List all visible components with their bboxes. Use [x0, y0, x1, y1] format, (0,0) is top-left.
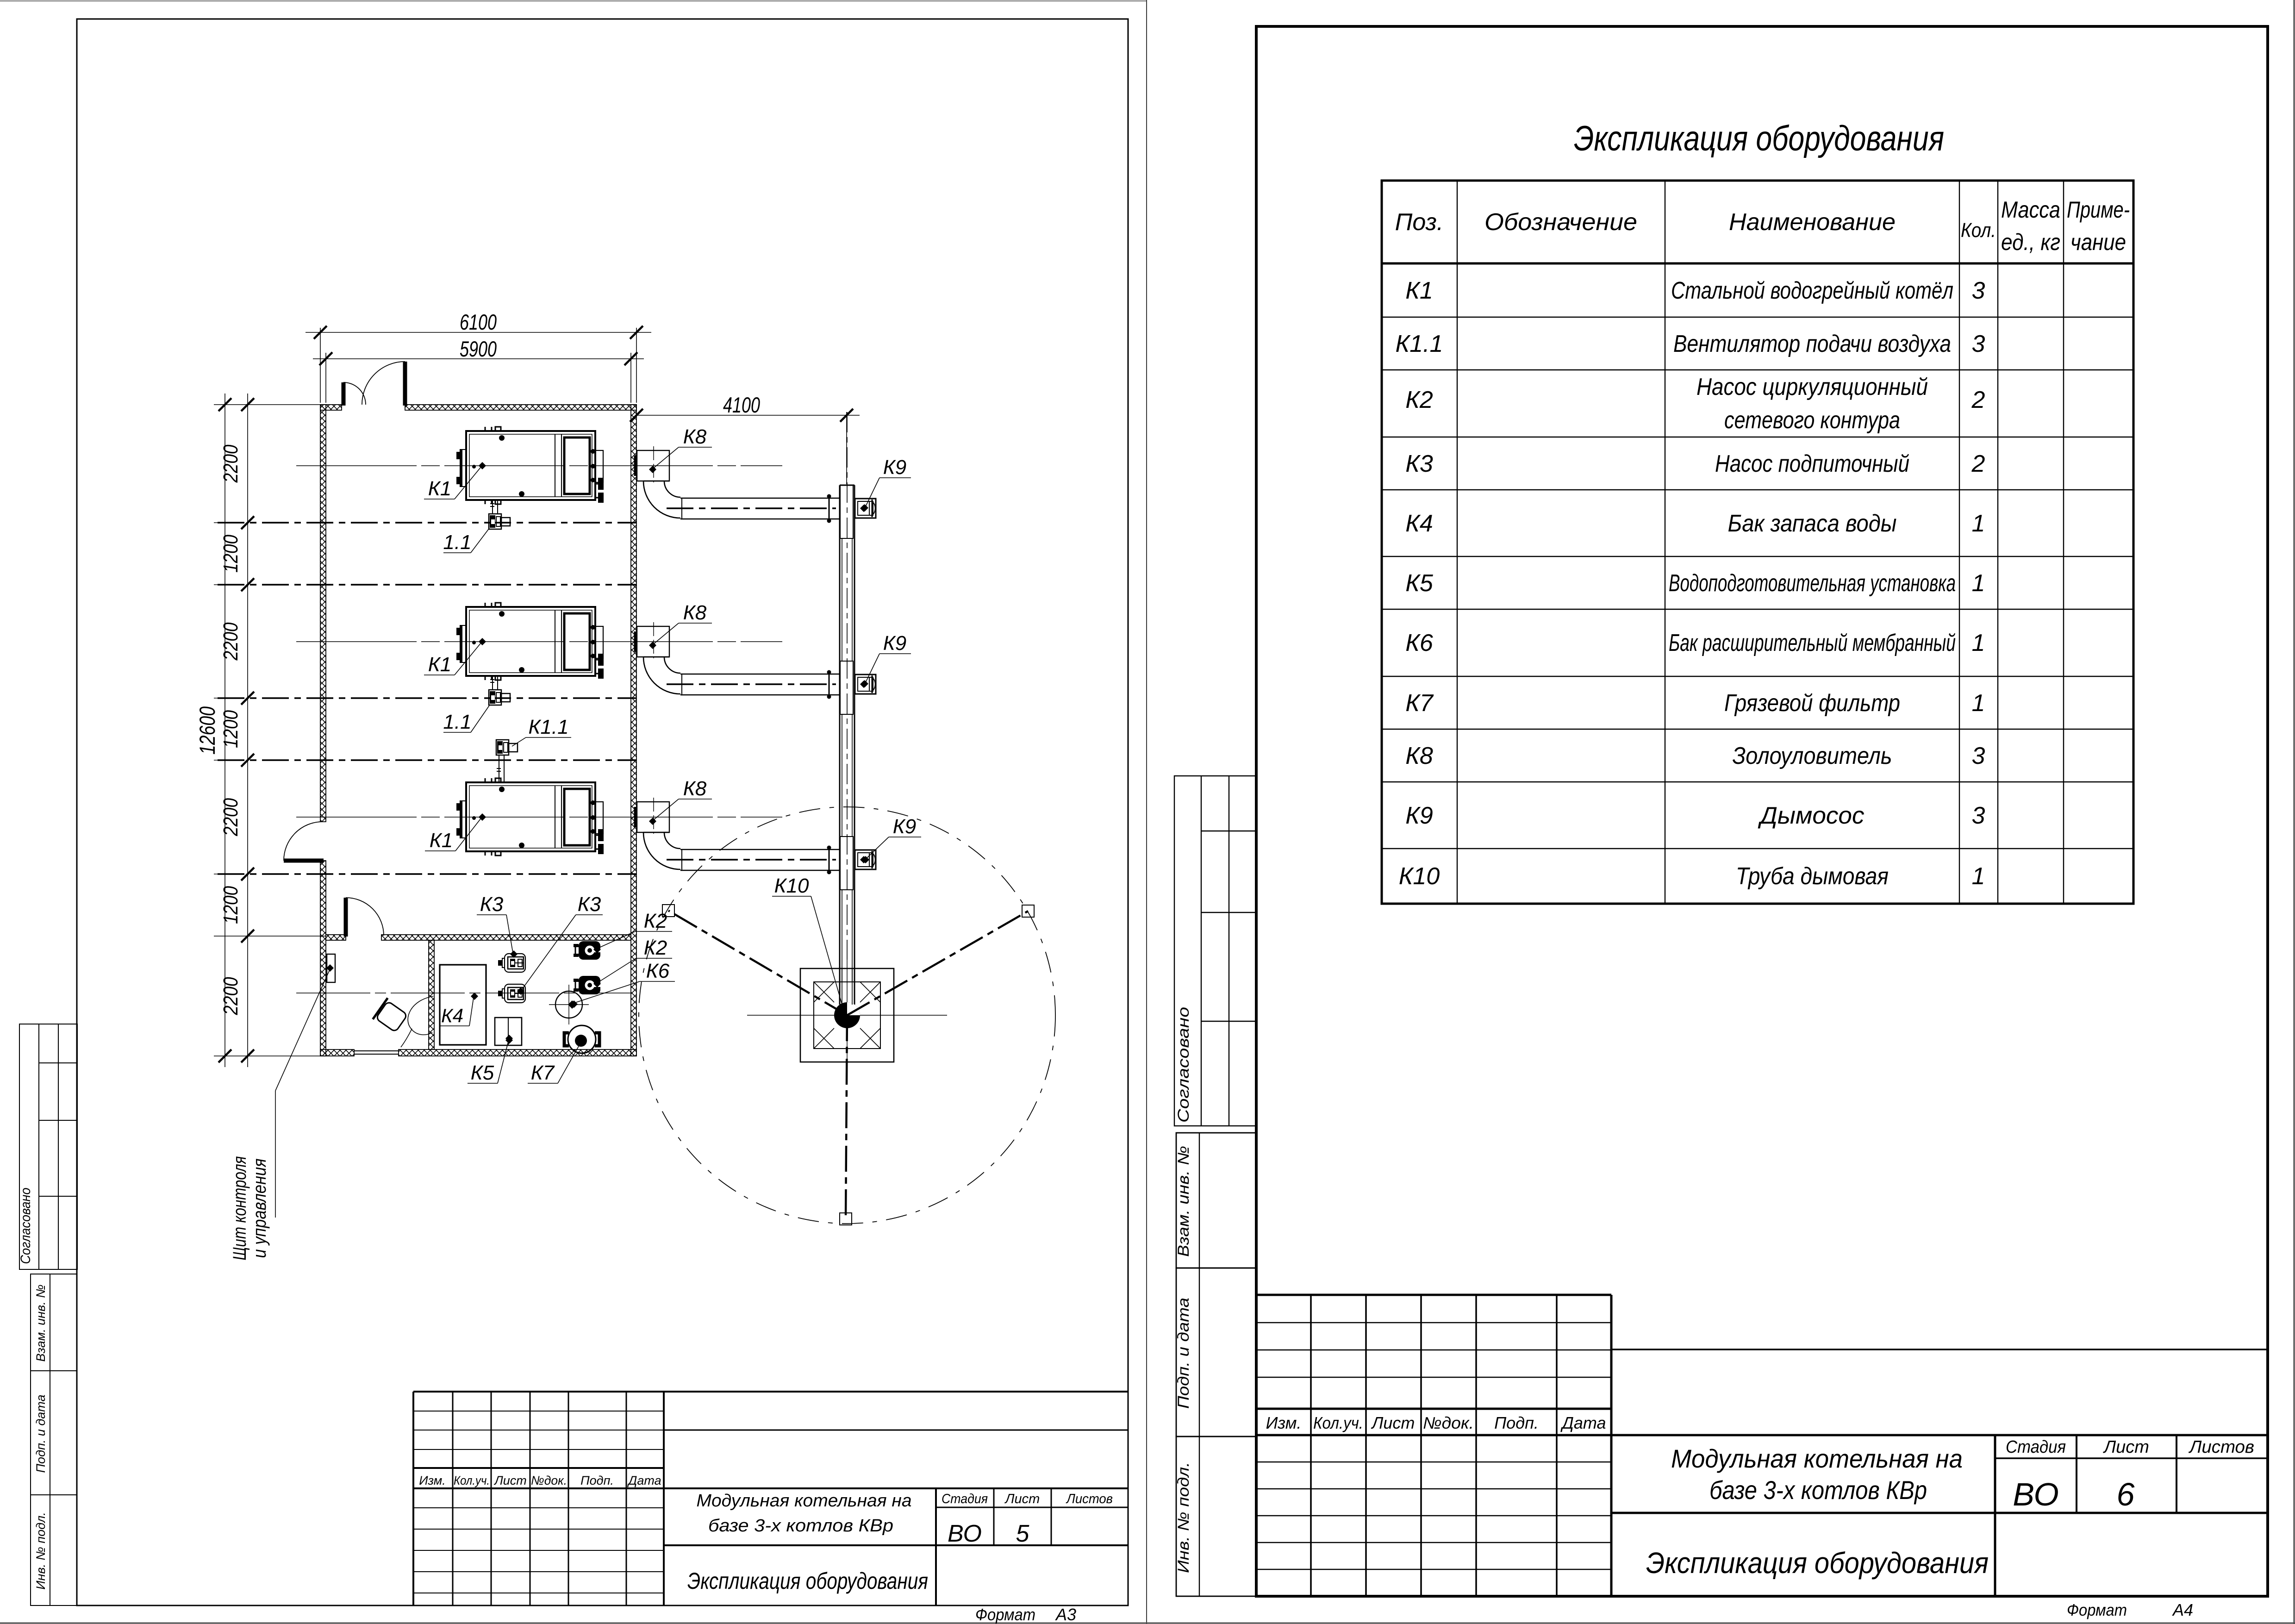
- svg-text:1200: 1200: [219, 535, 242, 573]
- svg-text:Насос подпиточный: Насос подпиточный: [1715, 450, 1909, 477]
- svg-text:К3: К3: [578, 893, 601, 916]
- svg-text:Лист: Лист: [493, 1474, 527, 1487]
- svg-text:4100: 4100: [723, 393, 760, 417]
- svg-text:К8: К8: [683, 601, 707, 624]
- svg-text:Кол.уч.: Кол.уч.: [1313, 1413, 1363, 1432]
- svg-text:1: 1: [1972, 570, 1985, 597]
- svg-text:Подп. и дата: Подп. и дата: [34, 1394, 48, 1473]
- svg-text:Листов: Листов: [2188, 1437, 2254, 1457]
- svg-text:3: 3: [1972, 331, 1985, 357]
- svg-text:Подп. и дата: Подп. и дата: [1175, 1298, 1192, 1409]
- svg-text:Взам. инв. №: Взам. инв. №: [34, 1285, 48, 1362]
- svg-text:Дата: Дата: [627, 1474, 661, 1487]
- svg-text:3: 3: [1972, 743, 1985, 769]
- svg-text:1.1: 1.1: [443, 711, 471, 733]
- svg-text:1.1: 1.1: [443, 531, 471, 554]
- svg-text:Формат: Формат: [975, 1605, 1035, 1624]
- svg-text:ВО: ВО: [948, 1520, 982, 1547]
- svg-text:Согласовано: Согласовано: [1175, 1007, 1192, 1123]
- svg-text:К1.1: К1.1: [1396, 331, 1443, 357]
- svg-text:К5: К5: [471, 1062, 494, 1084]
- svg-text:К7: К7: [531, 1062, 555, 1084]
- svg-text:К8: К8: [683, 777, 707, 800]
- svg-text:Взам. инв. №: Взам. инв. №: [1175, 1146, 1192, 1257]
- svg-text:№док.: №док.: [1423, 1413, 1474, 1432]
- svg-text:Экспликация оборудования: Экспликация оборудования: [1646, 1546, 1989, 1580]
- svg-text:3: 3: [1972, 802, 1985, 829]
- svg-text:12600: 12600: [195, 706, 219, 755]
- svg-text:К6: К6: [1405, 630, 1433, 656]
- svg-text:Дымосос: Дымосос: [1758, 802, 1864, 829]
- svg-text:К9: К9: [893, 815, 916, 838]
- svg-text:Изм.: Изм.: [1266, 1413, 1302, 1432]
- svg-text:5: 5: [1016, 1520, 1030, 1547]
- svg-text:Кол.: Кол.: [1961, 219, 1996, 242]
- svg-text:Бак расширительный мембранный: Бак расширительный мембранный: [1669, 630, 1956, 656]
- svg-text:Экспликация оборудования: Экспликация оборудования: [687, 1568, 928, 1594]
- svg-text:Экспликация оборудования: Экспликация оборудования: [1574, 119, 1944, 158]
- svg-text:Масса: Масса: [2001, 197, 2060, 223]
- svg-text:Лист: Лист: [2102, 1437, 2149, 1457]
- svg-text:Кол.уч.: Кол.уч.: [454, 1474, 490, 1487]
- svg-text:А4: А4: [2172, 1600, 2193, 1619]
- svg-text:К6: К6: [646, 960, 670, 982]
- svg-text:2200: 2200: [219, 622, 242, 661]
- svg-text:5900: 5900: [460, 337, 497, 361]
- svg-text:К1: К1: [430, 829, 453, 852]
- svg-text:Водоподготовительная установка: Водоподготовительная установка: [1669, 570, 1956, 597]
- svg-text:К7: К7: [1405, 690, 1434, 717]
- svg-text:3: 3: [1972, 277, 1985, 304]
- svg-text:К8: К8: [683, 425, 707, 448]
- svg-text:Инв. № подл.: Инв. № подл.: [1175, 1462, 1192, 1573]
- svg-text:сетевого контура: сетевого контура: [1724, 407, 1900, 434]
- svg-text:Стальной водогрейный котёл: Стальной водогрейный котёл: [1671, 277, 1953, 304]
- svg-text:К3: К3: [1405, 450, 1433, 477]
- svg-text:6100: 6100: [460, 310, 497, 334]
- svg-text:К10: К10: [1399, 863, 1440, 890]
- svg-text:Бак запаса воды: Бак запаса воды: [1728, 510, 1897, 537]
- svg-text:К1.1: К1.1: [528, 716, 568, 738]
- svg-text:1200: 1200: [219, 886, 242, 924]
- svg-text:Наименование: Наименование: [1729, 209, 1896, 236]
- svg-text:К8: К8: [1405, 743, 1433, 769]
- svg-text:Согласовано: Согласовано: [18, 1188, 33, 1264]
- svg-text:К1: К1: [1405, 277, 1433, 304]
- svg-text:Поз.: Поз.: [1395, 209, 1444, 236]
- svg-text:базе 3-х котлов КВр: базе 3-х котлов КВр: [708, 1516, 893, 1536]
- svg-text:Дата: Дата: [1560, 1413, 1606, 1432]
- svg-text:К2: К2: [644, 910, 667, 932]
- svg-text:2: 2: [1971, 450, 1985, 477]
- svg-text:№док.: №док.: [531, 1474, 567, 1487]
- svg-text:2200: 2200: [219, 444, 242, 483]
- svg-text:К3: К3: [480, 893, 504, 916]
- svg-text:Модульная котельная на: Модульная котельная на: [697, 1491, 912, 1511]
- svg-text:чание: чание: [2070, 229, 2126, 255]
- svg-text:К1: К1: [428, 653, 451, 676]
- svg-text:Стадия: Стадия: [2006, 1437, 2066, 1457]
- svg-text:Лист: Лист: [1371, 1413, 1415, 1432]
- svg-text:ед., кг: ед., кг: [2001, 229, 2060, 255]
- svg-text:Изм.: Изм.: [419, 1474, 446, 1487]
- svg-text:К5: К5: [1405, 570, 1434, 597]
- svg-text:Листов: Листов: [1066, 1492, 1113, 1506]
- svg-text:К1: К1: [428, 477, 451, 500]
- svg-text:К10: К10: [774, 874, 809, 897]
- svg-text:Приме-: Приме-: [2067, 197, 2130, 223]
- svg-text:2: 2: [1971, 387, 1985, 413]
- svg-text:Инв. № подл.: Инв. № подл.: [34, 1512, 48, 1590]
- svg-text:Формат: Формат: [2067, 1600, 2127, 1619]
- svg-text:Грязевой фильтр: Грязевой фильтр: [1724, 690, 1900, 717]
- svg-text:К9: К9: [883, 456, 906, 479]
- svg-text:Модульная котельная на: Модульная котельная на: [1671, 1444, 1963, 1473]
- svg-text:1: 1: [1972, 690, 1985, 717]
- svg-text:К9: К9: [1405, 802, 1433, 829]
- svg-text:Щит контроля: Щит контроля: [230, 1156, 250, 1261]
- svg-text:1: 1: [1972, 510, 1985, 537]
- svg-text:Стадия: Стадия: [942, 1492, 988, 1506]
- svg-text:Труба дымовая: Труба дымовая: [1736, 863, 1889, 890]
- svg-text:ВО: ВО: [2013, 1476, 2059, 1512]
- svg-text:Лист: Лист: [1004, 1492, 1040, 1506]
- svg-text:Обозначение: Обозначение: [1484, 209, 1637, 236]
- svg-text:Вентилятор подачи воздуха: Вентилятор подачи воздуха: [1673, 331, 1951, 357]
- svg-text:Золоуловитель: Золоуловитель: [1733, 743, 1892, 769]
- svg-text:К4: К4: [441, 1005, 463, 1026]
- svg-text:К2: К2: [644, 937, 667, 959]
- svg-text:и управления: и управления: [249, 1159, 270, 1258]
- svg-text:К4: К4: [1405, 510, 1433, 537]
- svg-text:1200: 1200: [219, 710, 242, 748]
- svg-text:1: 1: [1972, 863, 1985, 890]
- svg-text:базе 3-х котлов КВр: базе 3-х котлов КВр: [1709, 1475, 1927, 1505]
- svg-text:1: 1: [1972, 630, 1985, 656]
- svg-text:А3: А3: [1055, 1605, 1076, 1624]
- svg-text:Подп.: Подп.: [1494, 1413, 1539, 1432]
- svg-text:Подп.: Подп.: [580, 1474, 614, 1487]
- svg-text:2200: 2200: [219, 977, 242, 1015]
- svg-text:К2: К2: [1405, 387, 1433, 413]
- svg-text:К9: К9: [883, 632, 906, 655]
- svg-text:2200: 2200: [219, 798, 242, 837]
- svg-text:Насос циркуляционный: Насос циркуляционный: [1696, 374, 1928, 400]
- svg-text:6: 6: [2117, 1476, 2135, 1512]
